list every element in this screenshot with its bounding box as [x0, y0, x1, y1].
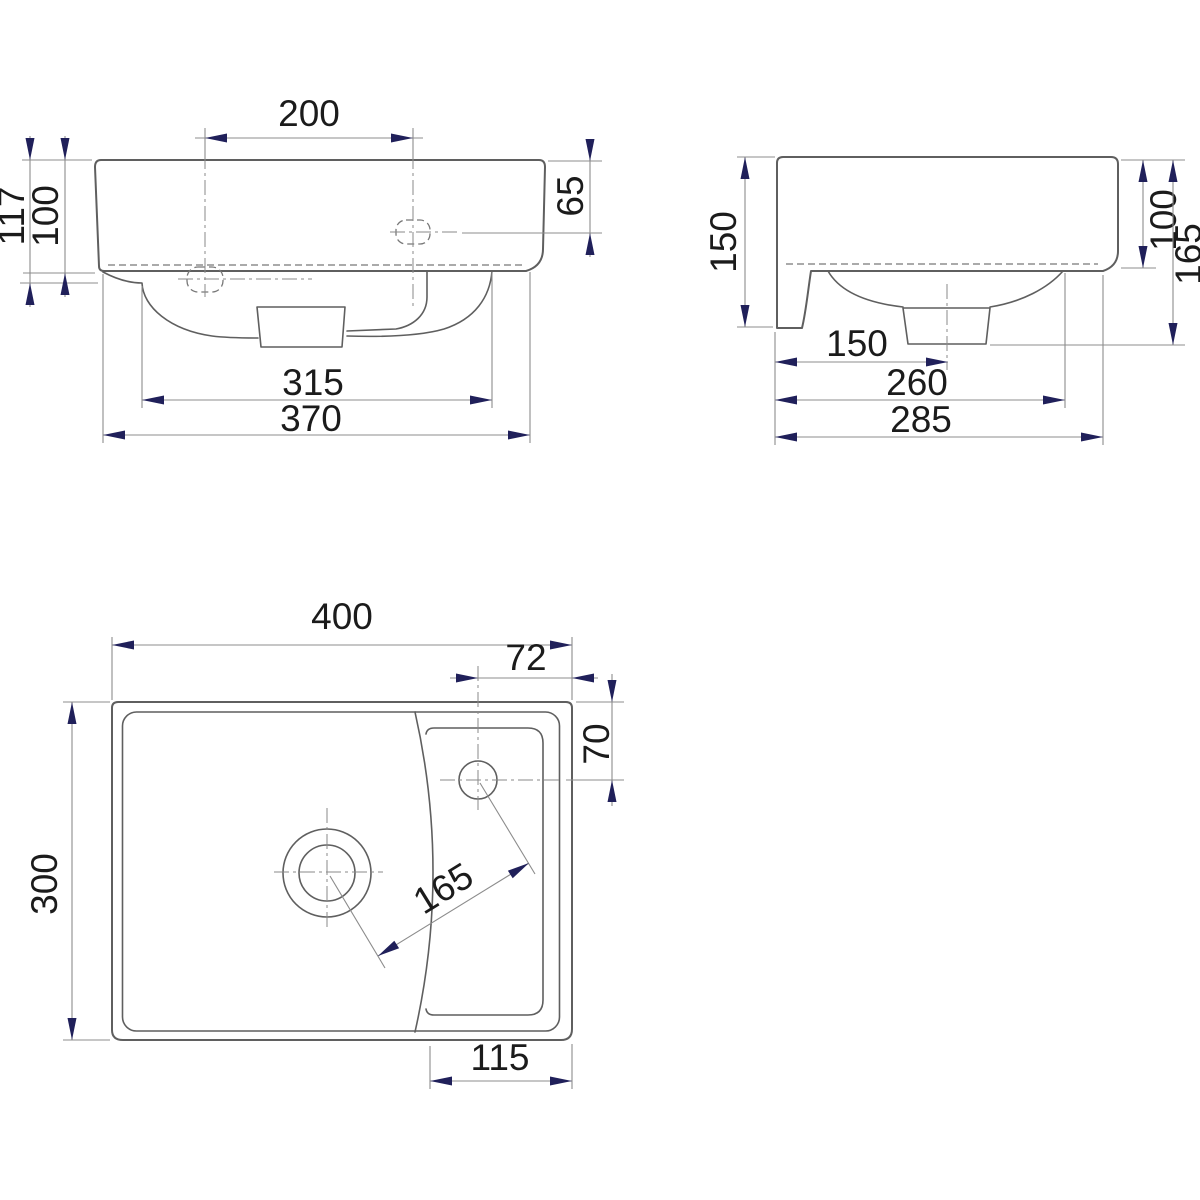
side-bowl-right-profile	[990, 271, 1063, 307]
dim-side-285: 285	[775, 275, 1103, 445]
dim-plan-70: 70	[566, 674, 624, 806]
dim-front-bowl-width: 315	[282, 362, 344, 403]
front-basin-outline	[95, 160, 545, 271]
front-view: 200 65 117 100 315	[0, 93, 602, 443]
dim-plan-400: 400	[112, 596, 572, 700]
dim-plan-overall-depth: 300	[24, 853, 65, 915]
side-bowl-left-profile	[828, 271, 903, 307]
dim-plan-hole-diagonal: 165	[406, 855, 480, 922]
front-bowl-left-profile	[103, 272, 258, 338]
side-view: 150 100 165 150 260	[703, 157, 1200, 445]
dim-plan-hole-from-right: 72	[505, 637, 546, 678]
dim-plan-shelf-width: 115	[471, 1037, 530, 1078]
dim-plan-115: 115	[430, 1037, 572, 1089]
dim-plan-overall-width: 400	[311, 596, 373, 637]
dim-side-depth-with-trap: 165	[1168, 223, 1200, 285]
dim-side-overall-depth: 285	[890, 399, 952, 440]
technical-drawing-page: 200 65 117 100 315	[0, 0, 1200, 1200]
side-basin-outline	[777, 157, 1118, 328]
dim-side-260: 260	[775, 273, 1065, 408]
dim-side-150v: 150	[703, 157, 775, 327]
front-bowl-right-inner	[347, 271, 427, 331]
dim-front-overall-width: 370	[280, 398, 342, 439]
dim-front-height-body: 100	[25, 185, 66, 247]
plan-view: 400 300 72 70 115	[24, 596, 624, 1089]
dim-front-65: 65	[462, 139, 602, 257]
dim-side-drain-from-wall: 150	[826, 323, 888, 364]
dim-front-hole-depth: 65	[550, 175, 591, 216]
plan-outer-outline	[112, 702, 572, 1040]
front-trap	[257, 307, 345, 347]
dim-front-hole-spacing: 200	[278, 93, 340, 134]
dim-plan-300: 300	[24, 702, 110, 1040]
dim-side-165: 165	[990, 160, 1200, 345]
dim-plan-hole-from-back: 70	[576, 723, 617, 764]
dim-plan-165-diagonal: 165	[330, 783, 535, 968]
front-bowl-right-outer	[347, 271, 492, 336]
washbasin-dimension-drawing: 200 65 117 100 315	[0, 0, 1200, 1200]
dim-front-200: 200	[195, 93, 423, 160]
dim-front-315: 315	[142, 272, 492, 408]
dim-plan-72: 72	[450, 637, 598, 683]
dim-side-height-with-flange: 150	[703, 211, 744, 273]
dim-side-bowl-extent: 260	[886, 362, 948, 403]
dim-front-370: 370	[103, 272, 530, 443]
